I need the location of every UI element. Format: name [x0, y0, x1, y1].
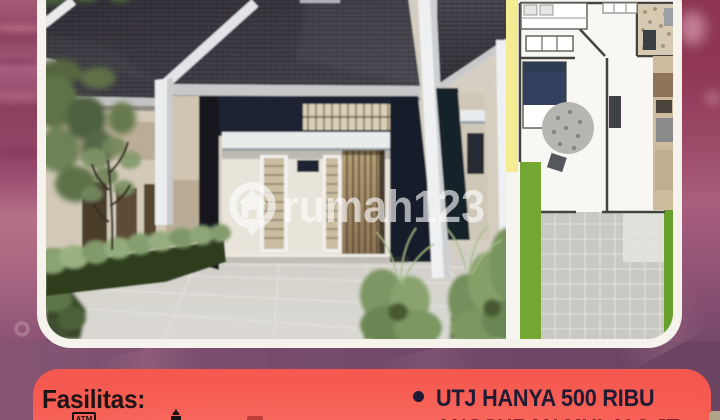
svg-text:rumah123: rumah123 [282, 181, 485, 232]
